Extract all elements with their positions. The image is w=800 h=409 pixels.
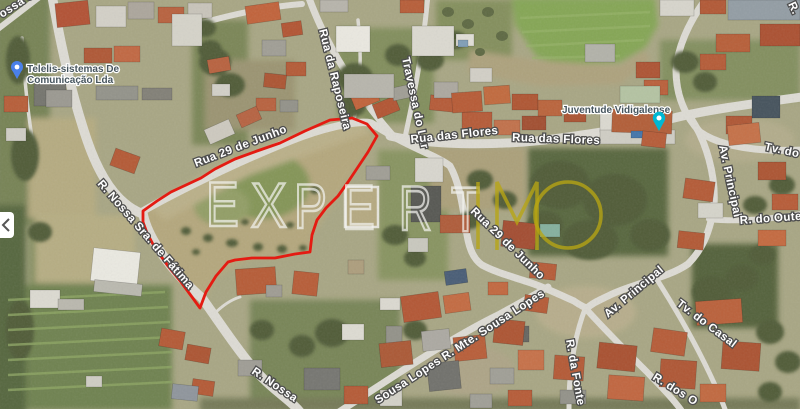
svg-text:P: P bbox=[294, 171, 327, 241]
svg-text:R: R bbox=[399, 173, 432, 244]
svg-text:Telelis-sistemas De: Telelis-sistemas De bbox=[27, 64, 120, 75]
svg-text:E: E bbox=[206, 169, 239, 239]
svg-text:X: X bbox=[251, 171, 287, 241]
svg-text:Comunicação Lda: Comunicação Lda bbox=[27, 75, 114, 86]
svg-text:E: E bbox=[342, 172, 375, 242]
